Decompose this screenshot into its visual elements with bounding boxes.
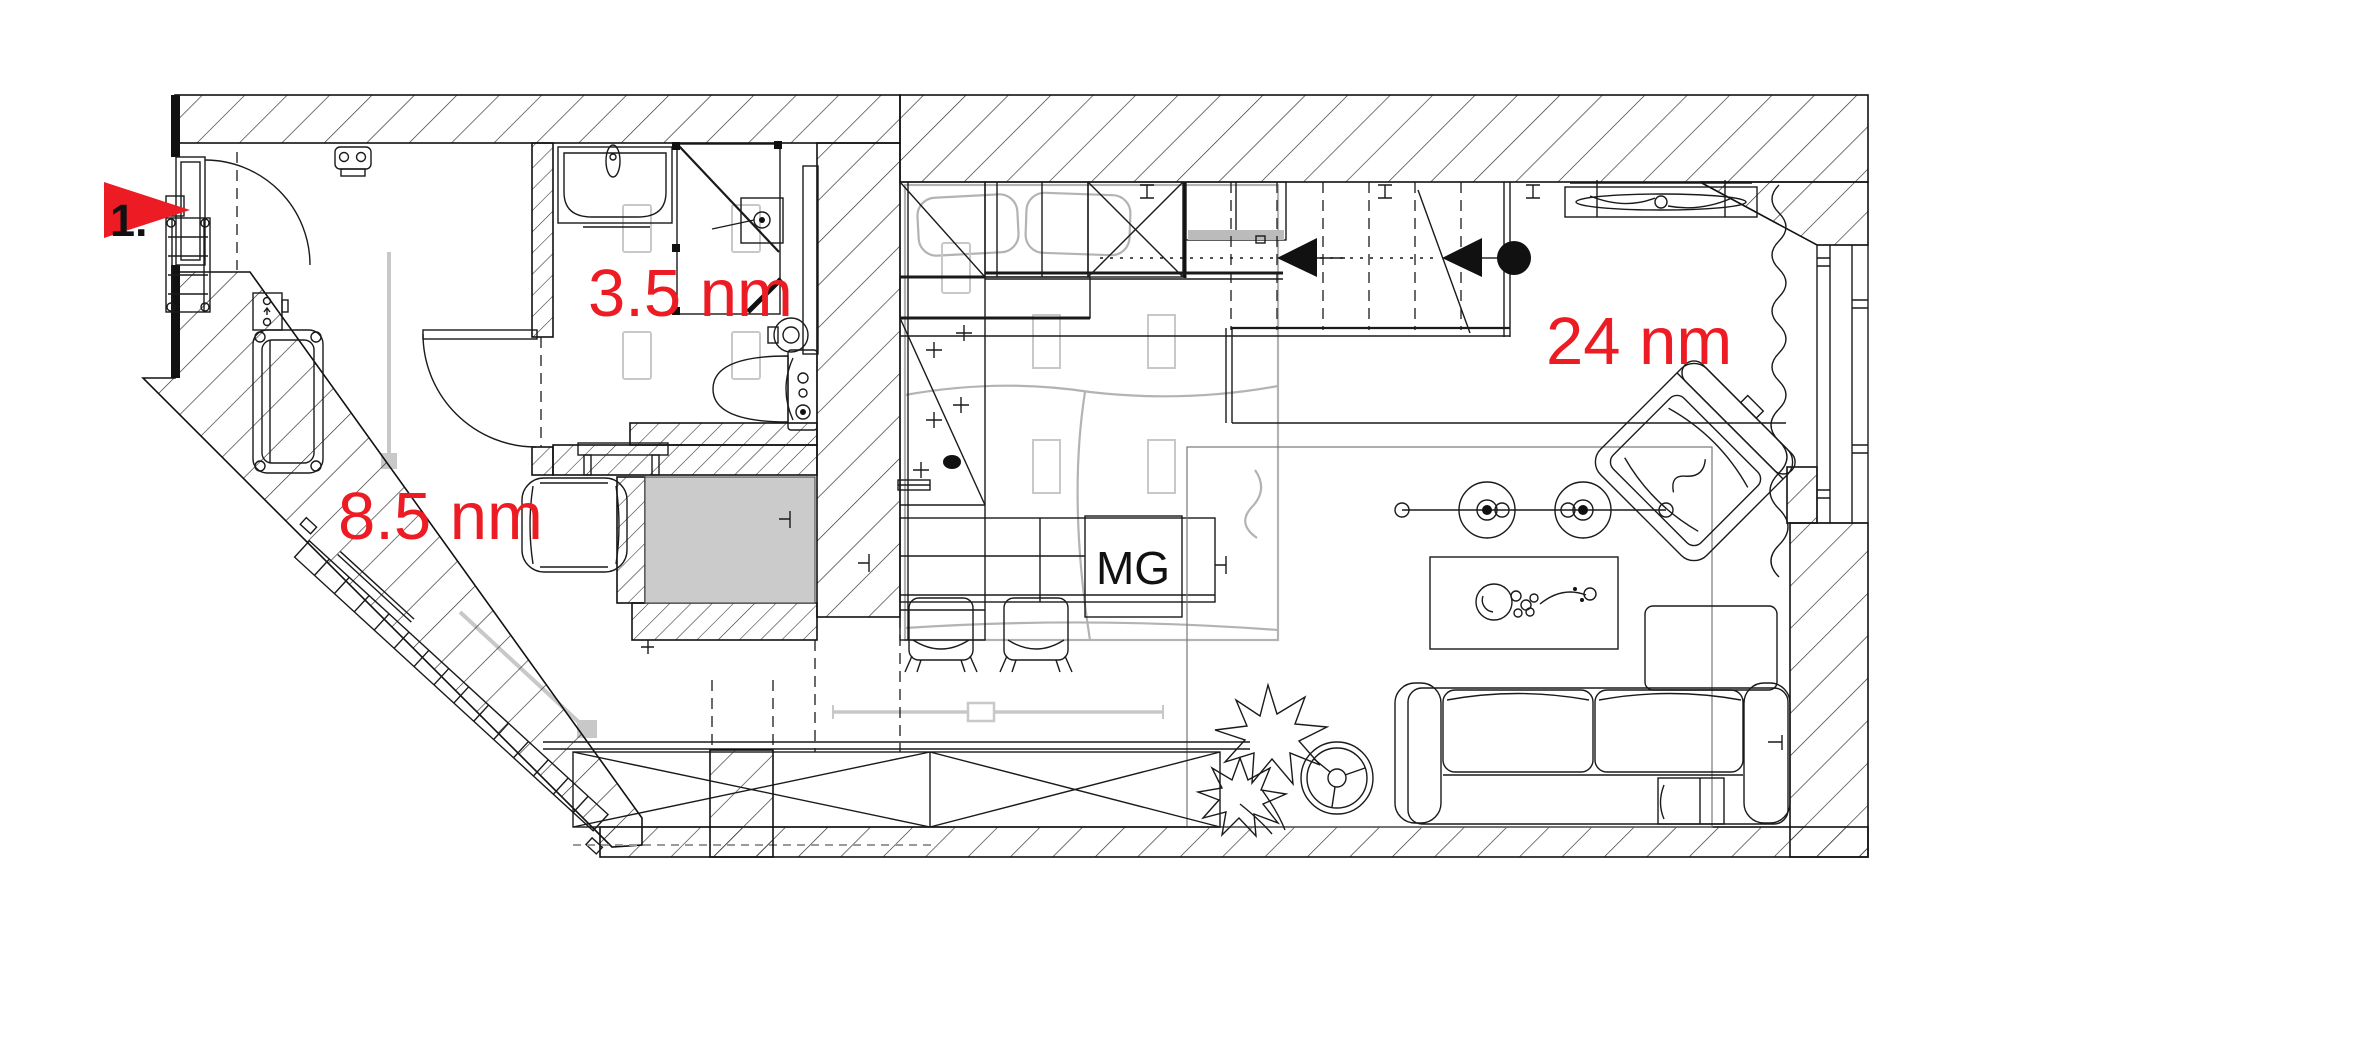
window — [1817, 245, 1868, 523]
bathroom-door — [423, 330, 541, 447]
stair-landing-cabinet — [1186, 182, 1286, 243]
tv-sideboard — [573, 752, 1220, 827]
toilet — [713, 350, 817, 430]
vanity-sink — [558, 145, 672, 227]
plant — [1198, 685, 1327, 836]
kitchen-counter: MG — [900, 516, 1226, 617]
living-area-label: 24 nm — [1546, 304, 1732, 379]
pendant-lights — [1395, 482, 1673, 538]
floor-plan-page: MG — [0, 0, 2380, 1057]
washing-machine-label: MG — [1096, 542, 1170, 594]
armchair — [1588, 349, 1807, 568]
entrance-door — [176, 152, 310, 270]
sofa — [1395, 606, 1790, 824]
coffee-table — [1430, 557, 1618, 649]
overhead-closets — [900, 182, 1283, 318]
entrance-flag-number: 1. — [110, 195, 148, 246]
wall-pier — [710, 750, 773, 857]
stairs — [900, 182, 1510, 337]
wall-mount-symbols — [1140, 185, 1540, 198]
entry-ceiling-lamp — [335, 147, 371, 176]
ceiling-fan — [1301, 742, 1373, 814]
bathroom-area-label: 3.5 nm — [588, 256, 793, 331]
hallway-area-label: 8.5 nm — [338, 479, 543, 554]
stair-direction-arrows — [1277, 238, 1531, 277]
floor-plan-svg: MG — [0, 0, 2380, 1057]
bar-chairs — [905, 598, 1072, 672]
stair-start-dot — [1497, 241, 1531, 275]
curtain — [1770, 185, 1788, 577]
